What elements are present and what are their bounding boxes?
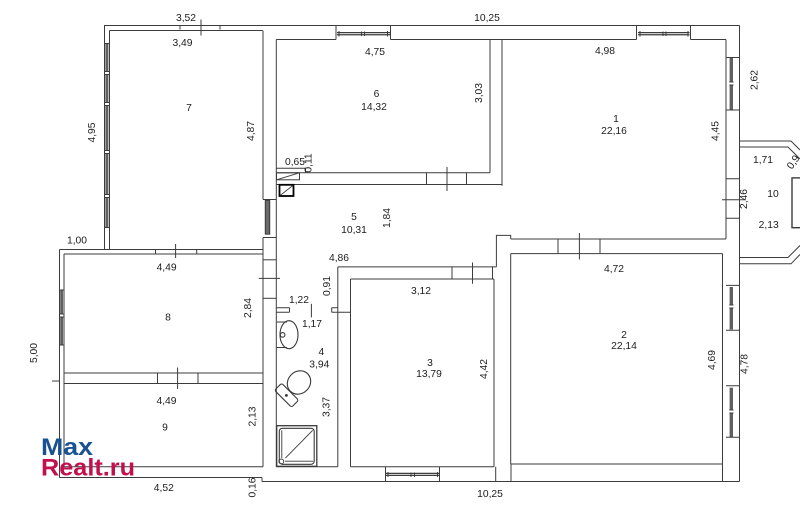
svg-text:3: 3 (427, 358, 433, 369)
svg-text:4,42: 4,42 (479, 359, 490, 379)
svg-text:22,14: 22,14 (611, 341, 637, 352)
svg-text:4,45: 4,45 (711, 121, 722, 141)
svg-text:4,49: 4,49 (156, 396, 176, 407)
svg-text:2,46: 2,46 (739, 189, 750, 209)
svg-text:4,95: 4,95 (87, 122, 98, 142)
svg-text:9: 9 (162, 422, 168, 433)
svg-text:2,62: 2,62 (750, 70, 761, 90)
svg-text:0,11: 0,11 (304, 153, 315, 173)
svg-text:10: 10 (767, 189, 779, 200)
svg-text:0,9: 0,9 (785, 153, 800, 171)
svg-text:1,22: 1,22 (289, 295, 309, 306)
svg-text:4,49: 4,49 (157, 263, 177, 274)
svg-text:3,37: 3,37 (322, 397, 333, 417)
svg-text:13,79: 13,79 (416, 369, 442, 380)
svg-text:7: 7 (186, 103, 192, 114)
svg-text:1,84: 1,84 (382, 208, 393, 228)
svg-text:1,00: 1,00 (67, 236, 87, 247)
svg-text:4,69: 4,69 (707, 350, 718, 370)
svg-text:1,17: 1,17 (302, 319, 322, 330)
svg-text:4,72: 4,72 (604, 264, 624, 275)
svg-text:22,16: 22,16 (601, 126, 627, 137)
svg-text:4,98: 4,98 (595, 46, 615, 57)
svg-text:3,94: 3,94 (309, 359, 329, 370)
svg-text:0,65: 0,65 (285, 157, 305, 168)
svg-text:2,13: 2,13 (248, 406, 259, 426)
svg-text:4,75: 4,75 (365, 47, 385, 58)
svg-text:1,71: 1,71 (753, 155, 773, 166)
svg-text:4,87: 4,87 (246, 121, 257, 141)
svg-text:Realt.ru: Realt.ru (41, 455, 135, 482)
svg-text:10,25: 10,25 (477, 489, 503, 500)
svg-text:0,16: 0,16 (248, 477, 259, 497)
svg-text:3,52: 3,52 (176, 13, 196, 24)
svg-text:5,00: 5,00 (29, 343, 40, 363)
svg-text:4: 4 (319, 347, 325, 358)
svg-text:4,52: 4,52 (154, 483, 174, 494)
svg-text:2: 2 (621, 330, 627, 341)
svg-text:4,78: 4,78 (740, 354, 751, 374)
svg-text:3,03: 3,03 (474, 83, 485, 103)
svg-text:3,49: 3,49 (172, 38, 192, 49)
svg-text:6: 6 (374, 89, 380, 100)
svg-text:1: 1 (613, 114, 619, 125)
svg-text:2,13: 2,13 (759, 220, 779, 231)
svg-text:10,25: 10,25 (474, 13, 500, 24)
svg-text:10,31: 10,31 (341, 225, 367, 236)
svg-text:5: 5 (351, 212, 357, 223)
svg-text:4,86: 4,86 (329, 253, 349, 264)
svg-text:0,91: 0,91 (322, 276, 333, 296)
svg-text:2,84: 2,84 (243, 298, 254, 318)
svg-text:14,32: 14,32 (361, 102, 387, 113)
svg-text:3,12: 3,12 (411, 286, 431, 297)
svg-text:8: 8 (165, 313, 171, 324)
